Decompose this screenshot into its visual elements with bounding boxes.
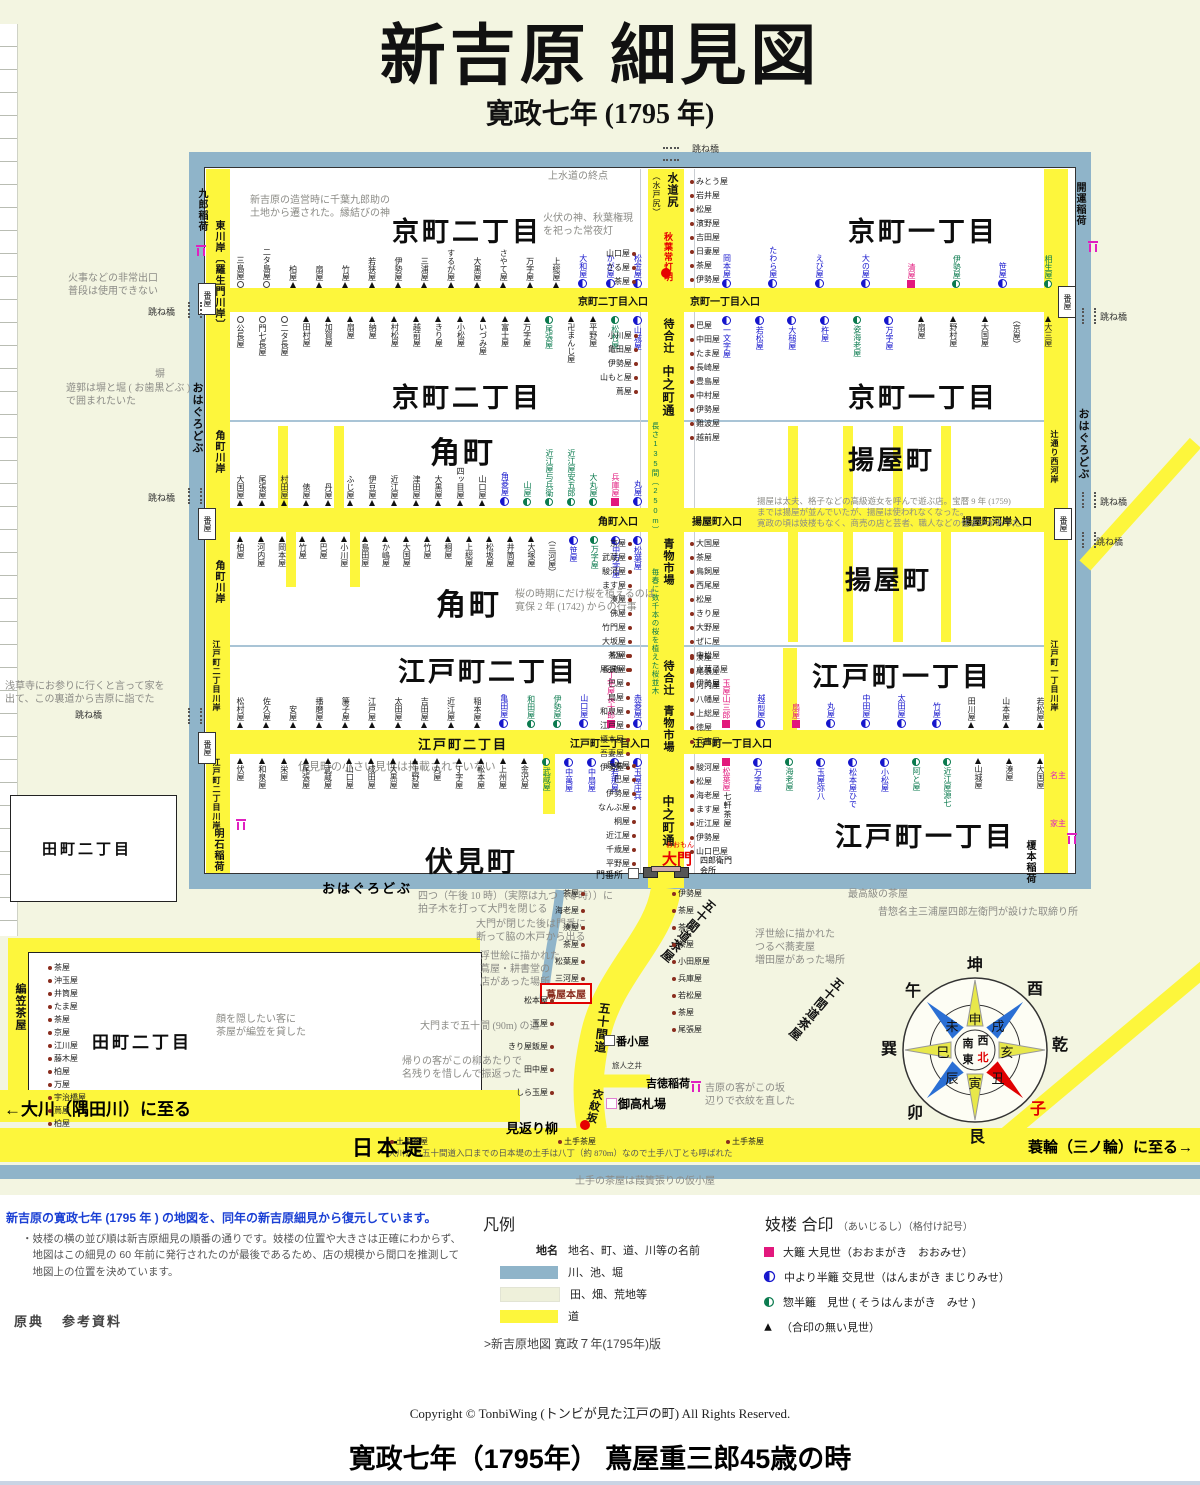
rank-mark-icon (820, 316, 829, 325)
shop-name: 公長屋 (236, 324, 244, 348)
teahouse-name: 駿河屋 (602, 566, 626, 577)
shop-name: 扇屋 (792, 703, 800, 719)
rank-mark-icon (403, 536, 409, 542)
teahouse-item: 茶屋 (690, 552, 728, 563)
giro-row: 大籬 大見世（おおまがき おおみせ） (765, 1239, 1010, 1264)
teahouse-item: 海老屋 (555, 905, 585, 916)
teahouse-item: 扇屋 (608, 692, 630, 703)
shop-name: 丸屋 (634, 480, 642, 496)
shop-name: 竹屋 (423, 543, 431, 559)
shop: 山本屋 (1002, 697, 1010, 728)
aomono-ichiba: 青物市場 (660, 538, 676, 586)
shops-kyomachi2-north: 三島屋二タ島屋柏屋扇屋竹屋若狭屋伊勢屋三浦屋するが屋大黒屋さやて屋万字屋上総屋大… (236, 242, 642, 288)
dot-icon (632, 280, 636, 284)
dot-icon (626, 654, 630, 658)
shop-name: 山本屋 (1002, 697, 1010, 721)
dot-icon (48, 966, 52, 970)
shop: 丸屋 (826, 702, 835, 728)
rank-mark-icon (303, 758, 309, 764)
shop: 笹屋 (998, 262, 1007, 288)
page: 新吉原 細見図 寛政七年 (1795 年) (0, 0, 1200, 1485)
torii-icon (196, 245, 206, 256)
rank-mark-icon (474, 722, 480, 728)
shop-name: 山屋 (523, 481, 531, 497)
teahouse-item: 巴屋 (608, 678, 630, 689)
teahouse-item: 武蔵屋 (602, 552, 632, 563)
shop-name: 和田屋 (527, 695, 535, 719)
shop-name: 湊屋 (1005, 765, 1013, 781)
shop: 播磨屋 (315, 697, 323, 728)
shop-name: 万字屋 (885, 326, 893, 350)
teahouse-item: 茶屋 (672, 939, 710, 950)
shop-name: 扇屋 (917, 323, 925, 339)
rank-mark-icon (611, 498, 619, 506)
dot-icon (690, 380, 694, 384)
shop-name: 松坂屋 (485, 543, 493, 567)
rank-mark-icon (281, 316, 288, 323)
rank-mark-icon (435, 500, 441, 506)
rank-mark-icon (369, 722, 375, 728)
bottom-caption: 寛政七年（1795年） 蔦屋重三郎45歳の時 (0, 1438, 1200, 1485)
teahouse-item: 湊屋 (690, 652, 720, 663)
teahouse-item: 京屋 (610, 538, 632, 549)
teahouse-item: 伊勢屋 (690, 832, 728, 843)
rank-mark-icon (567, 498, 575, 506)
shop: 近江屋 (390, 475, 398, 506)
shop-name: 小松屋 (881, 768, 889, 792)
teahouse-item: 尾張屋 (690, 666, 720, 677)
shop: 湊屋 (1005, 758, 1013, 781)
teahouse-item: 松本屋 (524, 995, 554, 1006)
entrance-kyo1: 京町一丁目入口 (690, 293, 760, 308)
note-top-chaya: 最高級の茶屋 (848, 888, 908, 901)
shop-name: 万字屋 (754, 768, 762, 792)
nushi-label: 名主 (1050, 770, 1066, 781)
teahouse-name: 柏屋 (54, 1118, 70, 1129)
dot-icon (626, 710, 630, 714)
rank-mark-icon (395, 722, 401, 728)
dot-icon (690, 836, 694, 840)
teahouse-item: 宇治橋屋 (48, 1092, 86, 1103)
giro-row: 惣半籬 見世 ( そうはんまがき みせ ) (765, 1289, 1010, 1314)
shop-name: 中萬屋 (565, 768, 573, 792)
teahouse-item: 上総屋 (690, 708, 720, 719)
shop-name: 大国屋 (402, 543, 410, 567)
compass-center-label: 南 (963, 1036, 974, 1050)
shops-kyomachi1-north: 岡本屋たわら屋えび屋大の屋清屋伊勢屋笹屋相生屋 (722, 242, 1052, 288)
dot-icon (632, 252, 636, 256)
compass-ring-label: 寅 (968, 1076, 981, 1091)
shop-name: 若松屋 (1036, 697, 1044, 721)
teahouse-name: 田中屋 (524, 1064, 548, 1075)
shop: 万字屋 (590, 536, 598, 569)
teahouse-item: 日妻屋 (690, 246, 728, 257)
shrine-akashi-inari: 明石稲荷 (210, 828, 225, 872)
teahouse-name: 茶屋 (54, 962, 70, 973)
shop-name: 納屋 (368, 323, 376, 339)
rank-mark-icon (502, 316, 508, 322)
dot-icon (690, 366, 694, 370)
alley (941, 532, 951, 642)
shop-name: 二タ長屋 (280, 324, 288, 356)
note-emon: 吉原の客がこの坂 辺りで衣紋を直した (705, 1082, 795, 1108)
shop: 杵屋 (820, 316, 829, 342)
dot-icon (632, 862, 636, 866)
compass-label: 乾 (1052, 1035, 1068, 1054)
shop: 和泉屋 (258, 758, 266, 789)
dot-icon (634, 376, 638, 380)
teahouse-name: 兵庫屋 (606, 760, 630, 771)
rank-mark-icon (815, 279, 824, 288)
teahouse-item: 海老屋 (690, 790, 728, 801)
teahouse-name: 万屋 (54, 1079, 70, 1090)
teahouse-item: 中田屋 (690, 334, 720, 345)
rank-mark-icon (500, 282, 506, 288)
dot-icon (690, 612, 694, 616)
rank-mark-icon (316, 282, 322, 288)
shop-name: 一文字屋 (723, 326, 731, 358)
teahouse-name: 八幡屋 (696, 694, 720, 705)
teahouse-item: 伊勢屋 (690, 274, 728, 285)
teahouse-item: 中村屋 (690, 390, 720, 401)
giro-label: （合印の無い見世） (781, 1319, 880, 1335)
shop: 中扇屋 (587, 758, 596, 792)
rank-mark-icon (316, 722, 322, 728)
rank-mark-icon (755, 316, 764, 325)
sanko-link[interactable]: 参考資料 (62, 1314, 122, 1329)
dot-icon (48, 979, 52, 983)
teahouse-item: 茶屋 (563, 939, 585, 950)
teahouse-item: 京屋 (48, 1027, 86, 1038)
teahouse-item: 桐屋 (614, 816, 636, 827)
shop-name: 上総屋 (552, 257, 560, 281)
rank-mark-icon (237, 758, 243, 764)
teahouse-item: 兵庫屋 (690, 736, 720, 747)
teahouse-item: 山口巴屋 (690, 846, 728, 857)
rank-mark-icon (912, 758, 920, 766)
dot-icon (48, 1096, 52, 1100)
teahouse-item: 兵庫屋 (672, 973, 710, 984)
compass-center-label: 西 (978, 1034, 989, 1047)
chaya-col-me: 巴屋中田屋たま屋長崎屋豊島屋中村屋伊勢屋難波屋越前屋 (690, 320, 720, 443)
teahouse-name: 豊島屋 (696, 376, 720, 387)
dot-icon (632, 266, 636, 270)
shop: 大国屋 (402, 536, 410, 567)
rank-mark-icon (998, 279, 1007, 288)
dot-icon (550, 1045, 554, 1049)
dot-icon (690, 598, 694, 602)
teahouse-item: 榎本屋 (600, 734, 630, 745)
teahouse-item: 大野屋 (690, 622, 728, 633)
shop: 納屋 (368, 316, 376, 339)
hanebashi: 跳ね橋 (1096, 535, 1123, 548)
rank-mark-icon (553, 720, 561, 728)
shop-name: 田川屋 (967, 697, 975, 721)
shop-name: 丸屋 (433, 765, 441, 781)
teahouse-name: 近江屋 (606, 830, 630, 841)
shop-name: 丹屋 (324, 483, 332, 499)
rank-mark-icon (303, 316, 309, 322)
dot-icon (690, 436, 694, 440)
teahouse-item: 沖玉屋 (48, 975, 86, 986)
teahouse-item: 尾張屋 (600, 664, 630, 675)
dot-icon (550, 1091, 554, 1095)
teahouse-item: 和泉屋 (600, 706, 630, 717)
teahouse-name: 松屋 (696, 776, 712, 787)
rank-mark-icon (258, 536, 264, 542)
teahouse-name: ます屋 (696, 804, 720, 815)
shop-name: 栄屋 (280, 765, 288, 781)
dot-icon (632, 834, 636, 838)
shop-name: か嶋屋 (381, 543, 389, 567)
rank-mark-icon (382, 536, 388, 542)
dot-icon (48, 1018, 52, 1022)
legend-row: 道 (500, 1305, 647, 1327)
dot-icon (690, 338, 694, 342)
rank-mark-icon (1003, 722, 1009, 728)
shop-name: 播磨屋 (315, 697, 323, 721)
compass-label: 子 (1030, 1100, 1046, 1118)
teahouse-name: ます屋 (602, 580, 626, 591)
rank-mark-icon (1045, 316, 1051, 322)
street-edo2-kawagishi: 江戸町二丁目川岸 (211, 640, 222, 712)
shop: 四ッ目屋 (456, 467, 464, 506)
shop: 小川屋 (340, 536, 348, 567)
teahouse-name: 桐屋 (614, 816, 630, 827)
rank-mark-icon (434, 758, 440, 764)
dot-icon (690, 740, 694, 744)
teahouse-item: 土手茶屋 (558, 1136, 596, 1147)
dot-icon (550, 1068, 554, 1072)
shop-name: 大の屋 (861, 254, 869, 278)
dot-icon (626, 752, 630, 756)
dot-icon (690, 726, 694, 730)
shop: 桐屋 (444, 536, 452, 559)
shop-name: 岡本屋 (278, 543, 286, 567)
rank-mark-icon (263, 281, 270, 288)
teahouse-item: 茶屋 (672, 922, 710, 933)
rank-mark-icon (281, 500, 287, 506)
rank-mark-icon (500, 497, 509, 506)
shop: ふじ屋 (346, 475, 354, 506)
teahouse-name: きり屋 (696, 608, 720, 619)
shop: 伊勢屋 (952, 255, 960, 288)
teahouse-item: 吉田屋 (690, 232, 728, 243)
dot-icon (558, 1140, 562, 1144)
shop: 竹屋 (298, 536, 306, 559)
tabibito-well: 旅人之井 (612, 1060, 642, 1071)
street-name-edocho2: 江戸町二丁目 (418, 734, 508, 753)
shops-edocho2-south: 伏屋和泉屋栄屋尾張屋武蔵屋山口屋成田屋大黒屋上野屋丸屋丁字屋松本屋上州屋金沢屋武… (236, 758, 642, 814)
rank-mark-icon (421, 722, 427, 728)
rank-mark-icon (587, 758, 596, 767)
compass-label: 卯 (907, 1104, 923, 1122)
teahouse-item: 茶屋 (48, 1014, 86, 1025)
shop-name: 河内屋 (257, 543, 265, 567)
teahouse-item: 松屋 (690, 594, 728, 605)
teahouse-name: 巴屋 (614, 774, 630, 785)
rank-mark-icon (369, 282, 375, 288)
rank-mark-icon (521, 758, 527, 764)
teahouse-name: 茶屋 (696, 552, 712, 563)
teahouse-name: 伊勢屋 (608, 358, 632, 369)
shop: 和田屋 (527, 695, 535, 728)
giro-label: 惣半籬 見世 ( そうはんまがき みせ ) (783, 1294, 976, 1310)
teahouse-name: 巴屋 (608, 678, 624, 689)
shop: 大の屋 (861, 254, 870, 288)
rank-mark-icon (633, 719, 642, 728)
teahouse-name: さる屋 (606, 262, 630, 273)
shops-sumicho-north: 大国屋尾張屋村田屋俵屋丹屋ふじ屋伊豆屋近江屋津田屋大黒屋四ッ目屋山口屋角菱屋山屋… (236, 452, 642, 506)
torii-icon (236, 819, 246, 830)
compass-label: 艮 (969, 1128, 986, 1146)
rank-mark-icon (237, 536, 243, 542)
teahouse-item: きり屋飯屋 (508, 1041, 554, 1052)
shop: 岡本屋 (278, 536, 286, 567)
rank-mark-icon (569, 536, 578, 545)
teahouse-item: 越前屋 (690, 432, 720, 443)
note-dote-chaya: 土手の茶屋は葭簀張りの仮小屋 (575, 1175, 715, 1188)
legend-swatch (500, 1287, 560, 1302)
compass-label: 午 (905, 981, 921, 1000)
teahouse-name: 藤木屋 (54, 1053, 78, 1064)
teahouse-item: 駿河屋 (690, 762, 728, 773)
rank-mark-icon (435, 316, 441, 322)
shop: 大槌屋 (787, 316, 796, 350)
dot-icon (626, 696, 630, 700)
teahouse-name: 吉田屋 (696, 232, 720, 243)
shop-name: 中扇屋 (588, 768, 596, 792)
shop-name: 海老屋 (785, 767, 793, 791)
dot-icon (690, 250, 694, 254)
legend-row: 田、畑、荒地等 (500, 1283, 647, 1305)
shop-name: 扇屋 (315, 265, 323, 281)
shop: 三浦屋 (420, 257, 428, 288)
teahouse-name: 土手茶屋 (564, 1136, 596, 1147)
shop-name: 吉田屋 (420, 697, 428, 721)
rank-mark-icon (764, 1297, 774, 1307)
shop: 大国屋 (236, 475, 244, 506)
rank-mark-icon (480, 316, 486, 322)
shop: 上州屋 (499, 758, 507, 789)
shop: 丁字屋 (455, 758, 463, 789)
shop: 伊豆屋 (368, 475, 376, 506)
rank-mark-icon (342, 722, 348, 728)
teahouse-item: 大国屋 (690, 538, 728, 549)
teahouse-item: さる屋 (606, 262, 636, 273)
mikaeri-yanagi: 見返り柳 (506, 1118, 558, 1137)
giro-rows: 大籬 大見世（おおまがき おおみせ）中より半籬 交見世（はんまがき まじりみせ）… (765, 1239, 1010, 1339)
shop: 万字屋 (526, 257, 534, 288)
dot-icon (672, 994, 676, 998)
shop: 松本屋ひで (848, 758, 857, 808)
rank-mark-icon (413, 316, 419, 322)
shop-name: 太田屋 (394, 697, 402, 721)
note-mikaeri: 帰りの客がこの柳あたりで 名残りを惜しんで振返った (402, 1055, 522, 1081)
teahouse-name: 湊屋 (696, 652, 712, 663)
shop: 大和屋 (578, 254, 587, 288)
shop: 大国屋 (981, 316, 989, 347)
teahouse-name: 蔦屋 (54, 1105, 70, 1116)
teahouse-name: 伊勢屋 (696, 274, 720, 285)
teahouse-name: 茶屋 (696, 260, 712, 271)
teahouse-name: 大国屋 (696, 538, 720, 549)
saiken-map-link[interactable]: >新吉原地図 寛政７年(1795年)版 (484, 1335, 661, 1352)
street-tsujidori: 辻通り西河岸 (1049, 430, 1060, 484)
shop-name: （京屋） (1012, 316, 1020, 348)
shop-name: たわら屋 (769, 246, 777, 278)
dot-icon (48, 1083, 52, 1087)
teahouse-name: 兵庫屋 (678, 973, 702, 984)
gensho-link[interactable]: 原典 (14, 1314, 44, 1329)
shop: 金沢屋 (520, 758, 528, 789)
teahouse-name: 井筒屋 (54, 988, 78, 999)
shop-name: ふじ屋 (346, 475, 354, 499)
shrine-kaiun-inari: 開運稲荷 (1072, 182, 1087, 226)
teahouse-name: 日妻屋 (696, 246, 720, 257)
shop: 中萬屋 (564, 758, 573, 792)
shop-name: 俵屋 (302, 483, 310, 499)
shop-name: 丸屋 (826, 702, 834, 718)
giro-row: （合印の無い見世） (765, 1314, 1010, 1339)
teahouse-item: きり屋 (690, 608, 728, 619)
shop: 姿海老屋 (853, 316, 861, 357)
shop-name: 三島屋 (236, 256, 244, 280)
shop-name: 近江屋源七 (943, 767, 951, 807)
rank-mark-icon (479, 500, 485, 506)
hanebashi: 跳ね橋 (148, 491, 175, 504)
shop-name: 大黒屋 (389, 765, 397, 789)
shop-name: 杵屋 (821, 326, 829, 342)
shop-name: 竹屋 (298, 543, 306, 559)
shop-name: 上総屋 (465, 543, 473, 567)
street-edo1-kawagishi: 江戸町一丁目川岸 (1049, 640, 1060, 712)
rank-mark-icon (237, 316, 244, 323)
giro-title: 妓楼 合印 （あいじるし）（格付け記号） (765, 1211, 973, 1235)
entrance-kyo2: 京町二丁目入口 (578, 293, 648, 308)
rank-mark-icon (237, 500, 243, 506)
shop-name: 扇屋 (346, 323, 354, 339)
note-ohaguro: 遊郭は塀と堀 ( お歯黒どぶ ) で囲まれたいた (66, 382, 190, 408)
banya-box: 番屋 (1058, 286, 1076, 318)
dot-icon (48, 1044, 52, 1048)
dot-icon (690, 352, 694, 356)
compass-ring-label: 丑 (991, 1071, 1004, 1086)
rank-mark-icon (413, 500, 419, 506)
rank-mark-icon (785, 758, 793, 766)
mitojiri: （水戸尻） (651, 172, 662, 217)
torii-icon (691, 1081, 701, 1092)
shop-name: 近江屋 (390, 475, 398, 499)
teahouse-name: 江川屋 (54, 1040, 78, 1051)
shop-name: 平野屋 (589, 323, 597, 347)
rank-mark-icon (478, 758, 484, 764)
copyright: Copyright © TonbiWing (トンビが見た江戸の町) All R… (0, 1403, 1200, 1422)
hanebashi: 跳ね橋 (75, 708, 102, 721)
dot-icon (632, 778, 636, 782)
compass-ring-label: 辰 (945, 1071, 958, 1086)
hanebashi-mark (188, 302, 202, 318)
shop: 山城屋 (974, 758, 982, 789)
dot-icon (550, 999, 554, 1003)
rank-mark-icon (589, 498, 597, 506)
legend-area-rows: 川、池、堀田、畑、荒地等道 (500, 1261, 647, 1327)
teahouse-item: 土手茶屋 (726, 1136, 764, 1147)
rank-mark-icon (950, 316, 956, 322)
chaya-col-gw: 兵庫屋巴屋伊勢屋なんぶ屋桐屋近江屋千歳屋平野屋 (598, 760, 636, 869)
teahouse-item: 岩井屋 (690, 190, 728, 201)
teahouse-name: 伊勢屋 (696, 404, 720, 415)
